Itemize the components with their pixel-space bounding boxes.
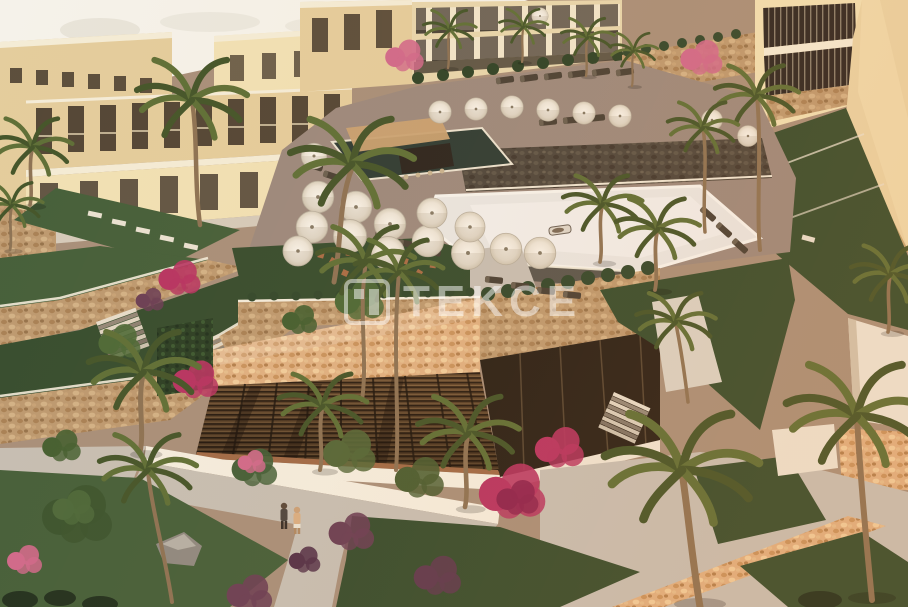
resort-render	[0, 0, 908, 607]
render-canvas: TEKCE	[0, 0, 908, 607]
sunset-light-overlay	[0, 0, 908, 607]
